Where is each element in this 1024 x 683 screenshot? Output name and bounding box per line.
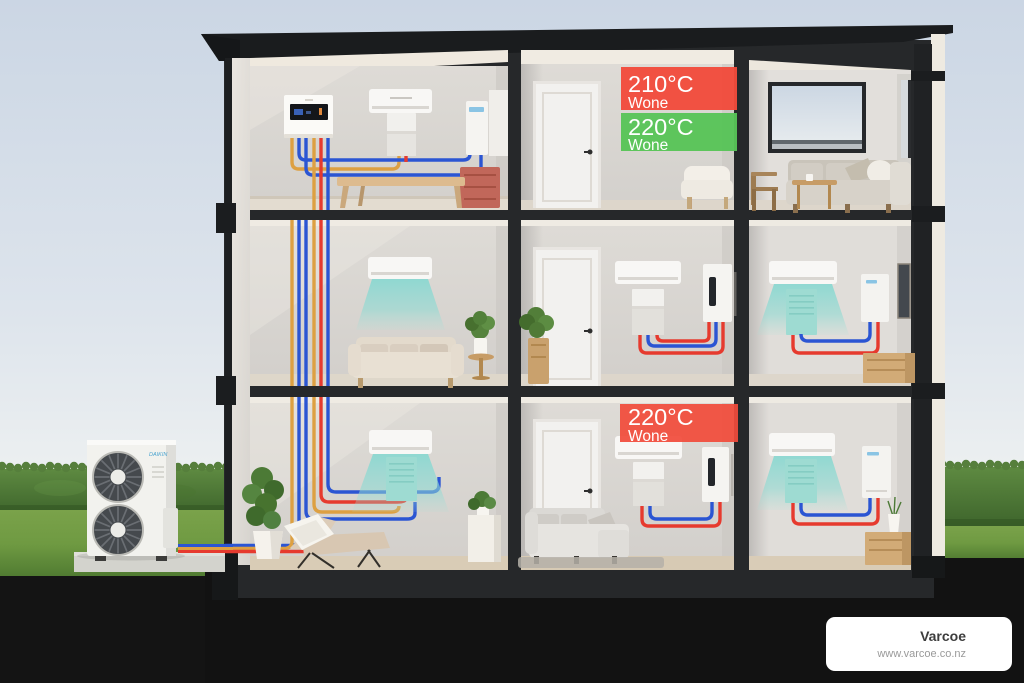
svg-text:DAIKIN: DAIKIN: [149, 452, 167, 458]
svg-text:220°C: 220°C: [628, 404, 694, 430]
svg-text:www.varcoe.co.nz: www.varcoe.co.nz: [876, 648, 966, 660]
svg-text:Varcoe: Varcoe: [920, 628, 966, 644]
svg-text:Wone: Wone: [628, 137, 668, 154]
svg-text:210°C: 210°C: [628, 71, 694, 97]
svg-text:Wone: Wone: [628, 95, 668, 112]
svg-text:Wone: Wone: [628, 428, 668, 445]
